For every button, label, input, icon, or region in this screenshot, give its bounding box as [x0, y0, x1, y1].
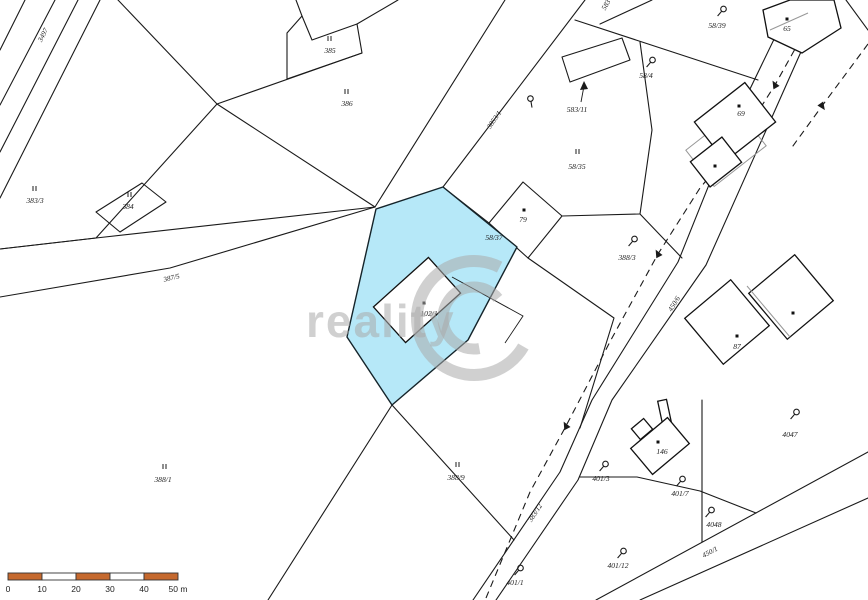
scale-label: 40 [139, 584, 149, 594]
parcel-label-58/39: 58/39 [708, 21, 726, 30]
boundary-line [0, 207, 375, 249]
road-line [846, 0, 868, 30]
parcel-label-4048: 4048 [706, 520, 721, 529]
parcel-label-II: II [127, 190, 133, 199]
road-label-383/12: 383/12 [526, 502, 544, 524]
parcel-outline [562, 38, 630, 82]
parcel-label-87: 87 [733, 342, 742, 351]
boundary-line [0, 207, 375, 297]
leader-arrowhead [580, 81, 588, 90]
boundary-line [268, 405, 392, 600]
cadastral-map: 3497II383/3II384II385II386387/53853/1583… [0, 0, 868, 600]
parcel-label-II: II [32, 184, 38, 193]
landuse-flag-icon [618, 548, 627, 558]
scale-label: 0 [6, 584, 11, 594]
scale-bar-segment [144, 573, 178, 580]
road-line [596, 452, 868, 600]
scale-bar-segment [76, 573, 110, 580]
parcel-label-401/7: 401/7 [671, 489, 690, 498]
road-label-450/1: 450/1 [701, 545, 719, 560]
building-number-dot [736, 335, 739, 338]
landuse-flag-icon [600, 461, 609, 471]
road-line [640, 498, 868, 600]
landuse-flag-icon [647, 57, 656, 67]
scale-bar: 01020304050 m [6, 573, 188, 594]
road-label-3497: 3497 [36, 26, 50, 44]
parcel-label-II: II [344, 87, 350, 96]
parcel-label-II: II [455, 460, 461, 469]
road-line [0, 0, 78, 152]
boundary-line [357, 0, 398, 24]
parcel-label-II: II [327, 34, 333, 43]
building-number-dot [714, 165, 717, 168]
landuse-flag-icon [524, 95, 537, 108]
boundary-line [528, 258, 614, 428]
parcel-label-386: 386 [340, 99, 353, 108]
landuse-flag-icon [718, 6, 727, 16]
parcel-label-58/4: 58/4 [639, 71, 653, 80]
parcel-label-401/1: 401/1 [506, 578, 523, 587]
building-number-dot [657, 441, 660, 444]
parcel-label-58/35: 58/35 [568, 162, 586, 171]
boundary-line [562, 214, 640, 216]
parcel-label-4047: 4047 [782, 430, 798, 439]
scale-bar-segment [110, 573, 144, 580]
road-label-583: 583 [600, 0, 613, 12]
parcel-label-388/1: 388/1 [153, 475, 171, 484]
map-canvas: 3497II383/3II384II385II386387/53853/1583… [0, 0, 868, 600]
scale-bar-segment [42, 573, 76, 580]
parcel-label-383/3: 383/3 [25, 196, 44, 205]
parcel-label-65: 65 [783, 24, 791, 33]
parcel-label-401/12: 401/12 [607, 561, 628, 570]
road-label-387/5: 387/5 [162, 272, 181, 284]
road-line [443, 0, 585, 187]
road-line [0, 0, 100, 198]
parcel-label-385: 385 [323, 46, 336, 55]
landuse-flag-icon [706, 507, 715, 517]
landuse-flag-icon [791, 409, 800, 419]
parcel-label-583/11: 583/11 [567, 105, 588, 114]
watermark-text: reality [306, 295, 456, 347]
building-number-dot [786, 18, 789, 21]
boundary-line [575, 20, 758, 80]
road-line [375, 0, 505, 207]
landuse-flag-icon [677, 476, 686, 486]
road-line [0, 0, 25, 50]
building-65 [763, 0, 841, 53]
parcel-label-388/9: 388/9 [446, 473, 465, 482]
boundary-line [217, 53, 362, 104]
scale-label: 10 [37, 584, 47, 594]
parcel-label-384: 384 [121, 202, 134, 211]
path-dashed-line [790, 44, 868, 150]
building-number-dot [523, 209, 526, 212]
parcel-label-69: 69 [737, 109, 745, 118]
parcel-label-58/37: 58/37 [485, 233, 504, 242]
direction-arrows [561, 79, 828, 430]
building-number-dot [792, 312, 795, 315]
parcel-label-II: II [162, 462, 168, 471]
parcel-label-388/3: 388/3 [617, 253, 636, 262]
road-line [0, 0, 55, 105]
road-label-450/6: 450/6 [667, 295, 683, 313]
boundary-line [296, 0, 302, 16]
scale-label: 30 [105, 584, 115, 594]
landuse-flag-icon [629, 236, 638, 246]
road-label-3853/1: 3853/1 [485, 109, 503, 131]
scale-label: 20 [71, 584, 81, 594]
parcel-label-79: 79 [519, 215, 527, 224]
scale-label: 50 m [169, 584, 188, 594]
parcel-label-401/3: 401/3 [592, 474, 610, 483]
parcel-label-146: 146 [656, 447, 668, 456]
building-number-dot [738, 105, 741, 108]
scale-bar-segment [8, 573, 42, 580]
parcel-label-II: II [575, 147, 581, 156]
boundary-line [0, 104, 217, 249]
